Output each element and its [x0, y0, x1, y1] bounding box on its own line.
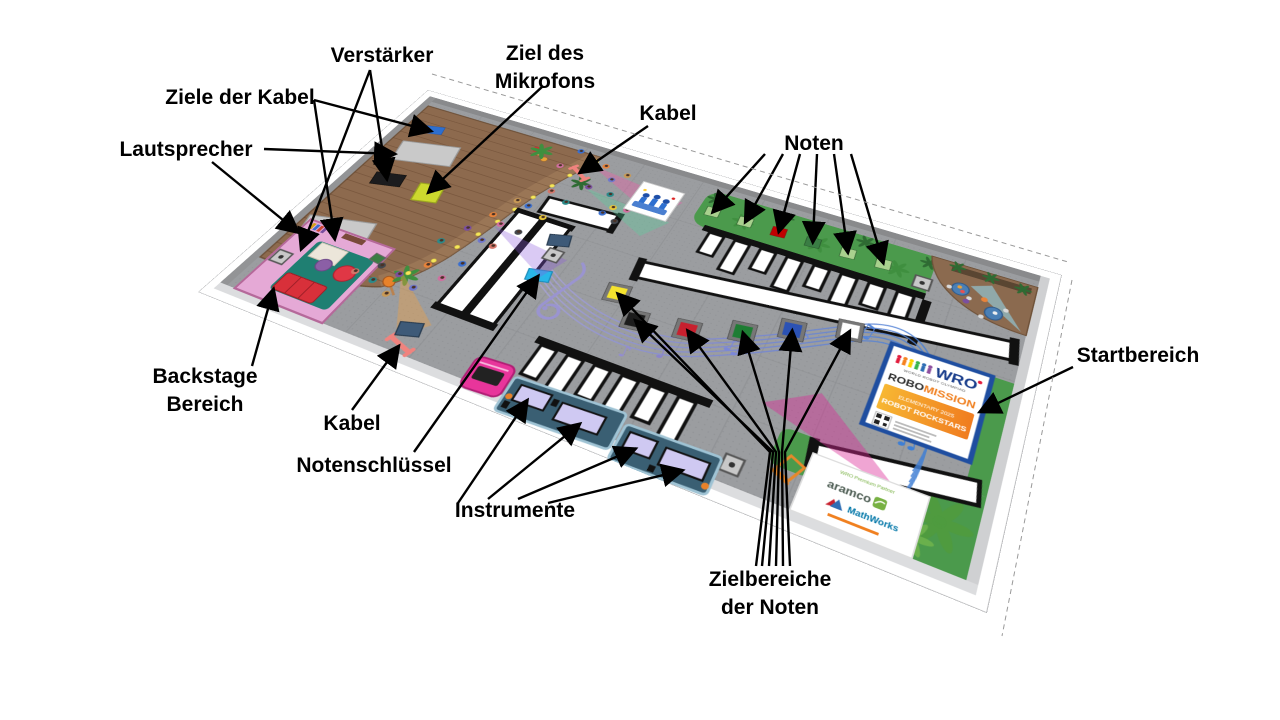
label-verstaerker: Verstärker: [331, 42, 434, 70]
label-backstage-bereich: BackstageBereich: [152, 363, 257, 419]
label-kabel-oben: Kabel: [639, 100, 696, 128]
label-ziel-des-mikrofons: Ziel desMikrofons: [495, 40, 595, 96]
diagram-canvas: ♪ ♪ ♫ ♪ ♫ ♪ ♫: [0, 0, 1280, 720]
field-plan: ♪ ♪ ♫ ♪ ♫ ♪ ♫: [198, 90, 1062, 613]
label-notenschluessel: Notenschlüssel: [296, 452, 451, 480]
label-startbereich: Startbereich: [1077, 342, 1200, 370]
label-instrumente: Instrumente: [455, 497, 575, 525]
label-lautsprecher: Lautsprecher: [119, 136, 252, 164]
label-noten: Noten: [784, 130, 844, 158]
label-kabel-unten: Kabel: [323, 410, 380, 438]
game-table: ♪ ♪ ♫ ♪ ♫ ♪ ♫: [198, 90, 1062, 613]
label-zielbereiche-der-noten: Zielbereicheder Noten: [709, 566, 832, 622]
label-ziele-der-kabel: Ziele der Kabel: [165, 84, 314, 112]
